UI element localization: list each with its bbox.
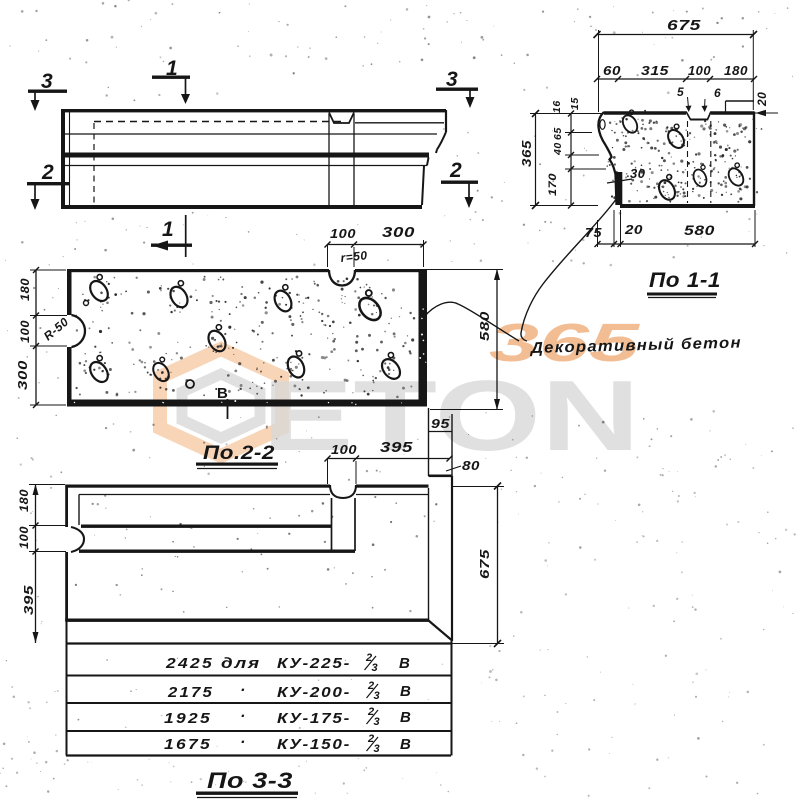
svg-text:395: 395 [380, 440, 414, 456]
svg-text:65: 65 [552, 127, 564, 140]
svg-text:·: · [240, 682, 246, 699]
svg-text:·: · [240, 708, 246, 725]
svg-text:3: 3 [372, 662, 378, 674]
svg-text:2: 2 [449, 159, 462, 182]
svg-text:180: 180 [17, 489, 31, 512]
svg-text:180: 180 [18, 278, 32, 301]
svg-text:ETON: ETON [262, 360, 640, 472]
svg-text:100: 100 [17, 526, 31, 549]
svg-text:для: для [221, 655, 261, 672]
svg-text:100: 100 [331, 442, 357, 457]
svg-text:20: 20 [624, 222, 643, 237]
svg-text:КУ-175-: КУ-175- [277, 710, 351, 727]
svg-text:16: 16 [551, 100, 563, 113]
svg-text:В: В [400, 709, 411, 726]
svg-text:1925: 1925 [164, 710, 212, 727]
svg-text:300: 300 [382, 225, 415, 241]
svg-text:675: 675 [477, 549, 492, 579]
svg-text:180: 180 [724, 63, 748, 78]
svg-text:20: 20 [755, 92, 769, 107]
svg-text:r=50: r=50 [340, 248, 368, 265]
svg-text:КУ-225-: КУ-225- [277, 655, 351, 672]
svg-text:100: 100 [688, 63, 711, 78]
svg-text:100: 100 [18, 320, 32, 343]
svg-text:По 1-1: По 1-1 [649, 269, 721, 292]
svg-text:В: В [399, 655, 410, 672]
svg-text:По.2-2: По.2-2 [203, 443, 275, 464]
svg-text:КУ-200-: КУ-200- [277, 684, 351, 701]
svg-text:3: 3 [374, 690, 380, 702]
svg-text:315: 315 [641, 63, 669, 78]
svg-text:40: 40 [552, 142, 564, 156]
svg-text:15: 15 [569, 97, 581, 110]
svg-text:6: 6 [714, 86, 721, 100]
svg-text:580: 580 [684, 222, 715, 238]
svg-text:60: 60 [603, 63, 621, 78]
svg-text:395: 395 [21, 585, 36, 615]
svg-text:80: 80 [462, 459, 480, 473]
svg-text:3: 3 [374, 743, 380, 755]
svg-text:·: · [240, 734, 246, 751]
svg-text:1675: 1675 [164, 736, 212, 753]
svg-text:675: 675 [667, 17, 701, 34]
svg-text:5: 5 [677, 85, 684, 99]
svg-text:30: 30 [630, 166, 646, 181]
svg-text:2175: 2175 [167, 684, 214, 701]
svg-text:В: В [400, 683, 411, 700]
svg-text:3: 3 [374, 716, 380, 728]
svg-text:580: 580 [477, 311, 492, 341]
svg-text:95: 95 [431, 417, 451, 431]
svg-text:2: 2 [41, 161, 54, 184]
svg-text:По 3-3: По 3-3 [207, 768, 293, 793]
svg-text:170: 170 [547, 173, 559, 196]
svg-text:КУ-150-: КУ-150- [277, 736, 351, 753]
svg-text:300: 300 [15, 360, 30, 390]
svg-text:1: 1 [162, 218, 174, 241]
svg-text:2425: 2425 [165, 655, 214, 672]
svg-text:В: В [400, 736, 411, 753]
svg-text:365: 365 [519, 140, 534, 167]
svg-text:100: 100 [330, 226, 356, 241]
